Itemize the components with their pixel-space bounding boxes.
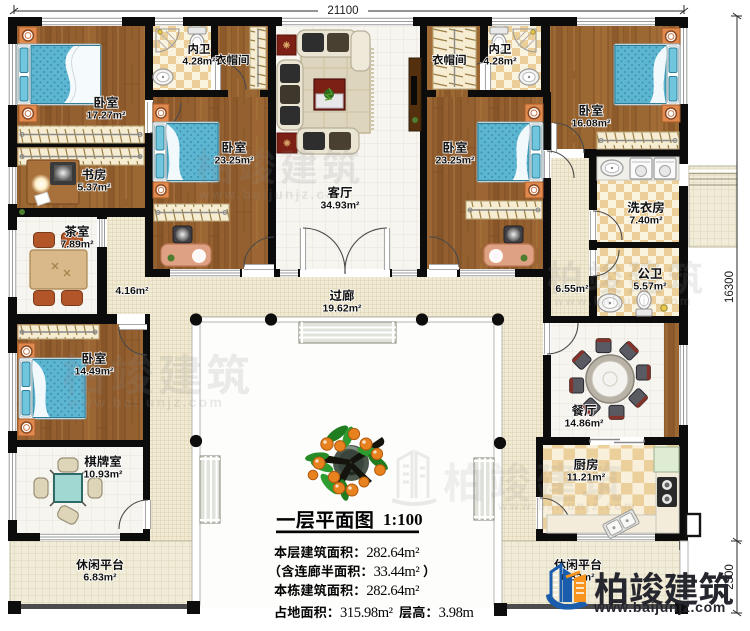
svg-text:6.83m²: 6.83m² [83,572,117,584]
svg-text:19.62m²: 19.62m² [322,303,362,315]
svg-text:16.08m²: 16.08m² [571,118,611,130]
svg-text:5.37m²: 5.37m² [77,182,111,194]
svg-text:www.baijunjz.com: www.baijunjz.com [553,294,693,308]
svg-text:14.86m²: 14.86m² [564,418,604,430]
svg-text:5.57m²: 5.57m² [633,281,667,293]
svg-text:17.27m²: 17.27m² [86,110,126,122]
svg-text:4.28m²: 4.28m² [483,56,517,68]
svg-text:www.baijunjz.com: www.baijunjz.com [593,599,726,615]
svg-text:1:100: 1:100 [383,510,423,529]
svg-text:23.25m²: 23.25m² [435,155,475,167]
svg-text:4.16m²: 4.16m² [115,285,149,297]
svg-text:6.55m²: 6.55m² [555,283,589,295]
svg-text:7.40m²: 7.40m² [629,215,663,227]
svg-text:4.28m²: 4.28m² [182,56,216,68]
svg-text:10.93m²: 10.93m² [83,469,123,481]
svg-text:21100: 21100 [327,5,358,17]
svg-text:34.93m²: 34.93m² [320,200,360,212]
svg-text:7.89m²: 7.89m² [60,239,94,251]
svg-text:www.baijunjz.com: www.baijunjz.com [497,499,637,513]
svg-text:282.64m²: 282.64m² [366,583,420,599]
svg-text:315.98m²: 315.98m² [340,605,394,621]
svg-text:282.64m²: 282.64m² [366,545,420,561]
svg-text:14.49m²: 14.49m² [74,366,114,378]
svg-text:3.98m: 3.98m [439,605,475,621]
svg-text:11.21m²: 11.21m² [567,472,606,484]
svg-text:33.44m²: 33.44m² [374,564,421,580]
svg-text:23.25m²: 23.25m² [214,155,254,167]
svg-text:www.baijunjz.com: www.baijunjz.com [67,394,224,410]
svg-text:16300: 16300 [724,271,736,303]
